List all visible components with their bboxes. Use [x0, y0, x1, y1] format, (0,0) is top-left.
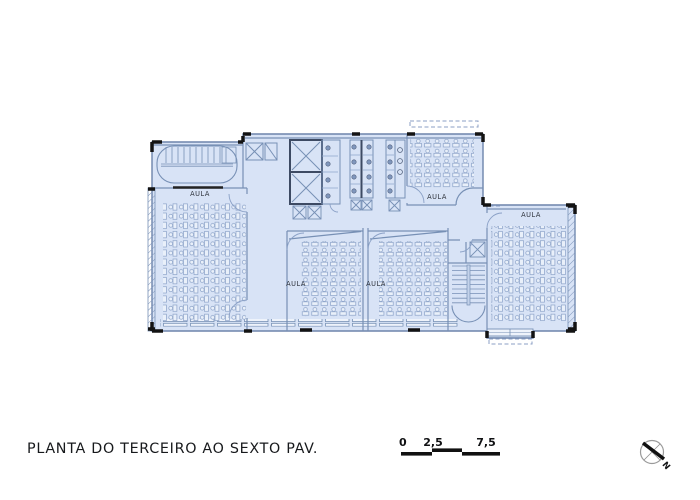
- scale-tick-1: 2,5: [423, 436, 443, 449]
- west-window-wall: [148, 188, 155, 331]
- scale-bar-segment: [401, 452, 432, 456]
- drawing-sheet: AULA AULA AULA AULA AULA PLANTA DO TERCE…: [0, 0, 700, 500]
- classroom-top-desks: [410, 139, 474, 188]
- room-label-center-left: AULA: [286, 280, 306, 288]
- room-label-left: AULA: [190, 190, 210, 198]
- floor-plan-svg: AULA AULA AULA AULA AULA PLANTA DO TERCE…: [0, 0, 700, 500]
- east-window-wall: [568, 205, 575, 331]
- scale-bar-segment: [432, 448, 462, 452]
- classroom-center-right-desks: [379, 241, 447, 317]
- room-label-center-right: AULA: [366, 280, 386, 288]
- scale-tick-0: 0: [399, 436, 407, 449]
- classroom-center-left-desks: [301, 241, 361, 317]
- room-label-top: AULA: [427, 193, 447, 201]
- classroom-right-desks: [491, 226, 566, 323]
- room-label-right: AULA: [521, 211, 541, 219]
- scale-bar-segment: [462, 452, 500, 456]
- scale-tick-2: 7,5: [476, 436, 496, 449]
- drawing-title: PLANTA DO TERCEIRO AO SEXTO PAV.: [27, 441, 318, 457]
- classroom-left-desks: [163, 203, 246, 322]
